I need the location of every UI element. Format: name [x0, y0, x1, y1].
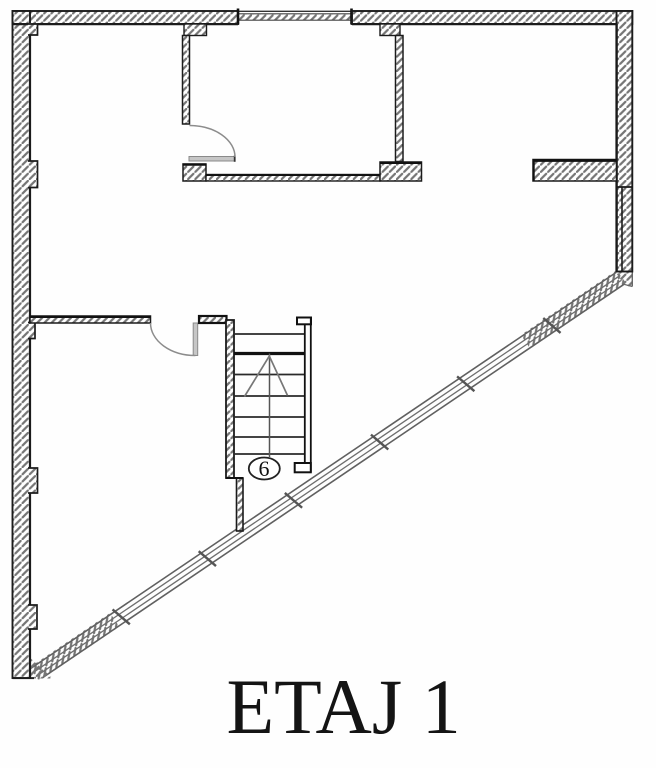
- svg-text:ETAJ 1: ETAJ 1: [227, 663, 461, 750]
- svg-text:6: 6: [259, 456, 270, 481]
